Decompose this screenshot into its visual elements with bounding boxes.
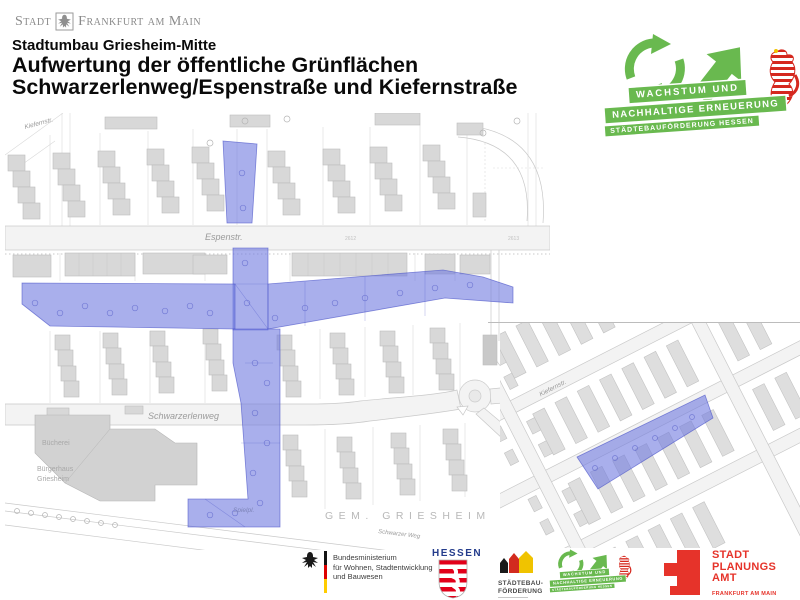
growth-renewal-badge: WACHSTUM UND NACHHALTIGE ERNEUERUNG STÄD… (603, 26, 798, 141)
highlight-south-strip (188, 329, 280, 527)
city-logo-name: Frankfurt am Main (78, 14, 201, 30)
label-buergerhaus-1: Bürgerhaus (37, 466, 74, 473)
highlight-espenstrasse-north (223, 141, 257, 223)
spa-subline: FRANKFURT AM MAIN (712, 589, 776, 600)
recycle-arrows-icon (651, 34, 671, 54)
hessen-wordmark: HESSEN (432, 548, 482, 559)
slide: Stadt Frankfurt am Main Stadtumbau Gries… (0, 0, 800, 600)
label-gemarkung-griesheim: GEM. GRIESHEIM (325, 510, 491, 522)
spa-line-1: STADT (712, 550, 776, 562)
label-buergerhaus-2: Griesheim (37, 476, 69, 483)
spa-line-3: AMT (712, 573, 776, 585)
label-kiefernstrasse: Kiefernstr. (24, 117, 54, 131)
bmwsb-text: Bundesministerium für Wohnen, Stadtentwi… (333, 551, 433, 593)
highlight-west-band (22, 283, 235, 329)
stadtplanungsamt-mark-icon (662, 550, 702, 596)
houses-icon (498, 551, 538, 573)
frankfurt-coat-of-arms-icon (55, 12, 74, 31)
stadtplanungsamt-logo: STADT PLANUNGS AMT FRANKFURT AM MAIN (662, 550, 776, 600)
bmwsb-logo: Bundesministerium für Wohnen, Stadtentwi… (300, 551, 433, 593)
city-logo-stadt: Stadt (15, 14, 51, 30)
label-schwarzerlenweg: Schwarzerlenweg (148, 411, 219, 421)
slide-supertitle: Stadtumbau Griesheim-Mitte (12, 37, 216, 54)
bmwsb-line-3: und Bauwesen (333, 572, 433, 582)
german-flag-stripe-icon (324, 551, 327, 593)
buergerhaus-building (35, 415, 197, 501)
bmwsb-line-2: für Wohnen, Stadtentwicklung (333, 563, 433, 573)
main-site-map: Kiefernstr. Espenstr. 2612 2613 Schwarze… (5, 113, 550, 550)
slide-title: Aufwertung der öffentliche Grünflächen S… (12, 54, 517, 98)
label-espenstrasse: Espenstr. (205, 232, 243, 242)
title-line-2: Schwarzerlenweg/Espenstraße und Kieferns… (12, 76, 517, 98)
title-line-1: Aufwertung der öffentliche Grünflächen (12, 54, 517, 76)
inset-site-map: Kiefernstr. (500, 323, 800, 548)
label-parcel-2613: 2613 (508, 236, 519, 242)
growth-renewal-badge-small: WACHSTUM UND NACHHALTIGE ERNEUERUNG STÄD… (549, 546, 631, 594)
bmwsb-line-1: Bundesministerium (333, 553, 433, 563)
city-logo: Stadt Frankfurt am Main (15, 12, 201, 31)
label-parcel-2612: 2612 (345, 236, 356, 242)
staedtebau-smallprint (498, 597, 568, 600)
label-schwarzer-weg: Schwarzer Weg (378, 529, 421, 540)
stadtplanungsamt-text: STADT PLANUNGS AMT FRANKFURT AM MAIN (712, 550, 776, 600)
highlight-central-stem (233, 248, 268, 330)
label-spielplatz: Spielpl. (233, 507, 255, 514)
label-buecherei: Bücherei (42, 440, 70, 447)
federal-eagle-icon (300, 551, 322, 571)
road-espenstrasse (5, 226, 550, 250)
hessen-shield-icon (437, 559, 469, 599)
